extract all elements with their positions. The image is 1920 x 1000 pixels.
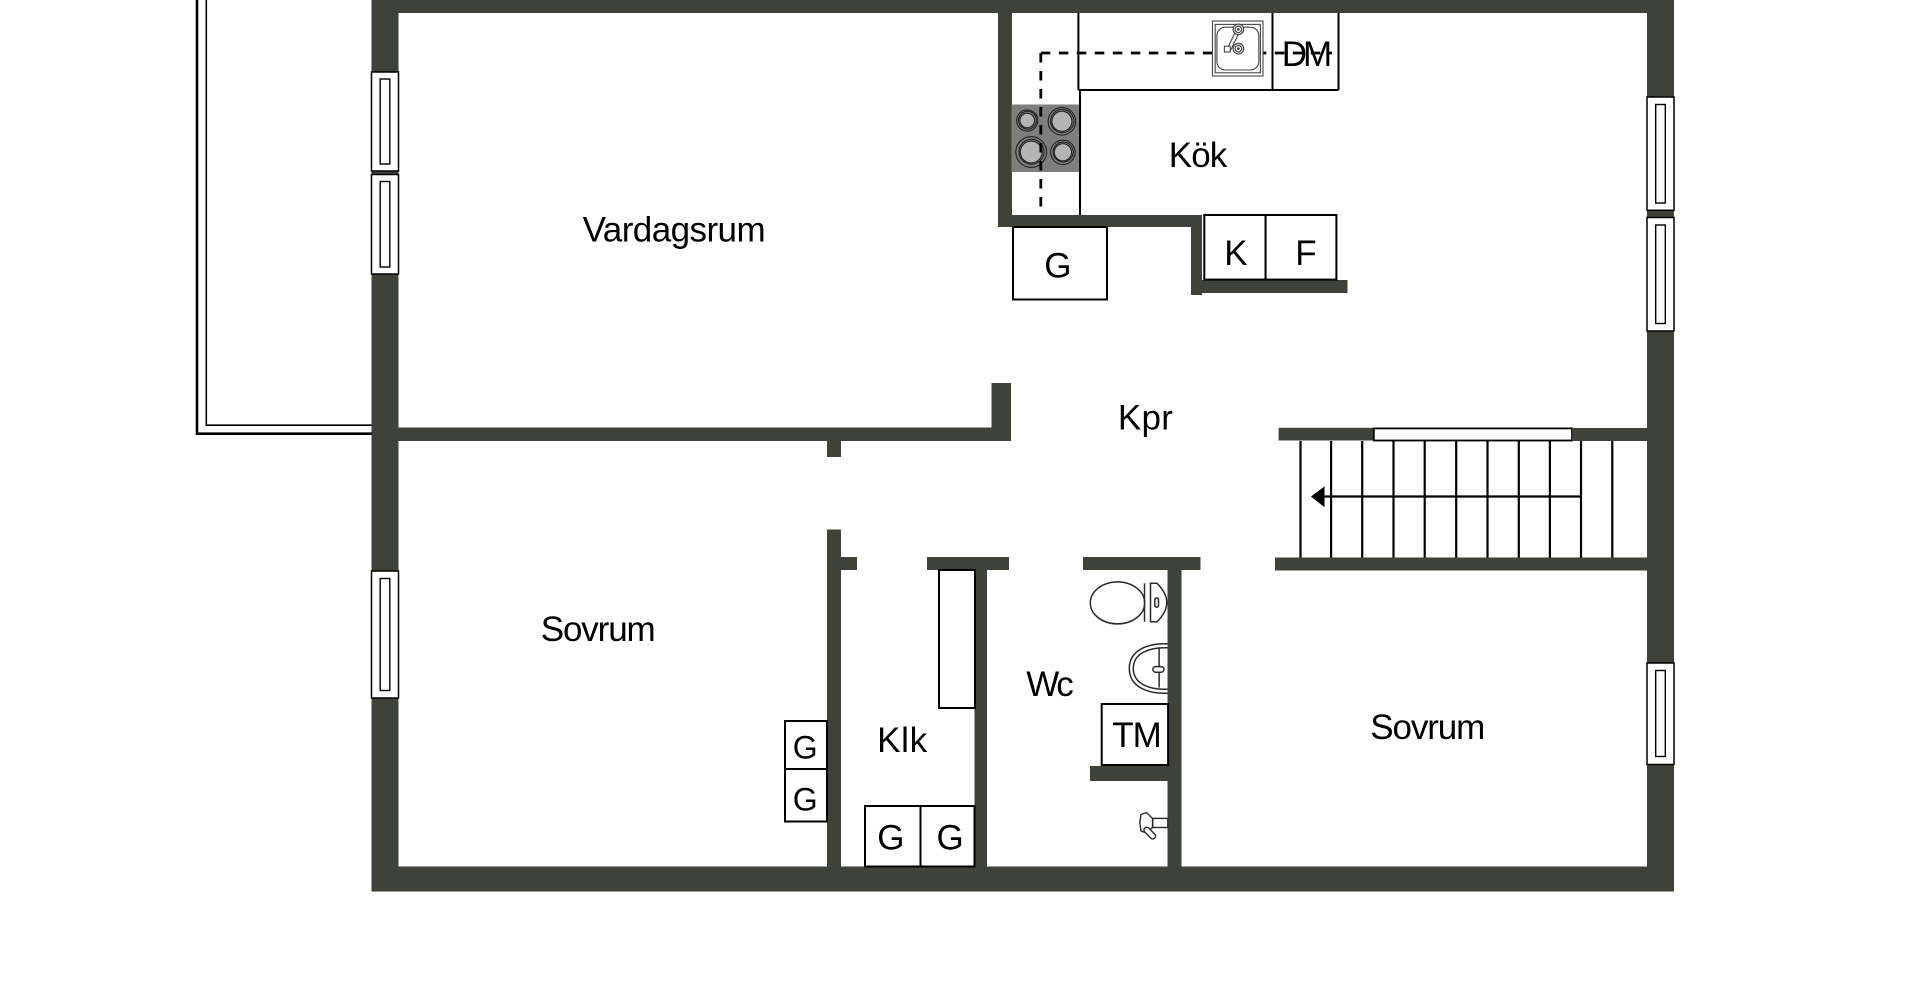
svg-text:Vardagsrum: Vardagsrum (583, 211, 766, 250)
svg-text:DM: DM (1282, 35, 1333, 74)
svg-text:Wc: Wc (1026, 665, 1074, 704)
svg-text:G: G (793, 729, 818, 765)
svg-text:Kök: Kök (1169, 136, 1228, 175)
svg-text:F: F (1295, 234, 1316, 273)
svg-text:Sovrum: Sovrum (1370, 708, 1485, 747)
svg-text:Kpr: Kpr (1118, 399, 1173, 438)
svg-text:G: G (1044, 247, 1071, 286)
svg-text:TM: TM (1112, 716, 1162, 755)
svg-text:G: G (937, 819, 964, 858)
svg-text:G: G (793, 781, 818, 817)
svg-text:Klk: Klk (877, 721, 928, 760)
svg-text:Sovrum: Sovrum (541, 610, 656, 649)
svg-text:K: K (1224, 234, 1247, 273)
svg-text:G: G (877, 819, 904, 858)
